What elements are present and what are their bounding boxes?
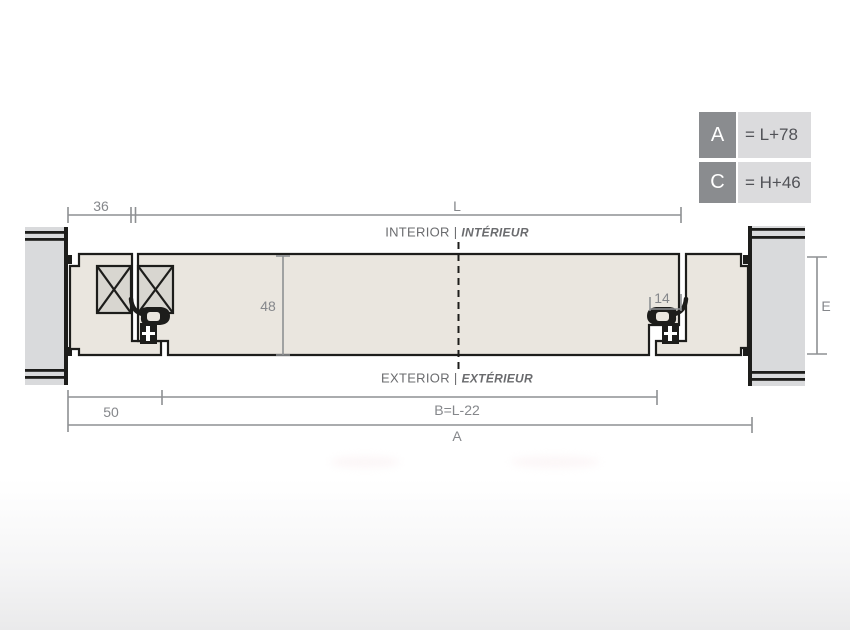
- legend-value-a: = L+78: [738, 112, 811, 158]
- right-wall: [743, 226, 805, 386]
- exterior-label: EXTERIOR|EXTÉRIEUR: [381, 371, 533, 386]
- dim-E: E: [821, 298, 830, 314]
- dim-A: A: [452, 428, 461, 444]
- sash-profile-center: [138, 254, 679, 355]
- dim-50: 50: [103, 404, 119, 420]
- exterior-label-fr: EXTÉRIEUR: [462, 372, 533, 386]
- technical-drawing-page: 36 L 48 14 50 B=L-22 A E INTERIOR|INTÉRI…: [0, 0, 850, 630]
- legend-key-c: C: [699, 162, 736, 203]
- exterior-label-separator: |: [450, 371, 462, 386]
- legend-row-c: C = H+46: [699, 162, 811, 203]
- legend-row-a: A = L+78: [699, 112, 811, 158]
- left-wall: [25, 227, 72, 385]
- dim-48: 48: [260, 298, 276, 314]
- interior-label-en: INTERIOR: [385, 225, 450, 240]
- legend-key-a: A: [699, 112, 736, 158]
- dim-36: 36: [93, 198, 109, 214]
- exterior-label-en: EXTERIOR: [381, 371, 450, 386]
- interior-label-fr: INTÉRIEUR: [461, 226, 528, 240]
- interior-label: INTERIOR|INTÉRIEUR: [385, 225, 529, 240]
- legend-value-c: = H+46: [738, 162, 811, 203]
- formula-legend: A = L+78 C = H+46: [699, 112, 811, 203]
- interior-label-separator: |: [450, 225, 462, 240]
- dim-L: L: [453, 198, 461, 214]
- dim-14: 14: [654, 290, 670, 306]
- frame-cross-section: [0, 0, 850, 630]
- dim-B: B=L-22: [434, 402, 480, 418]
